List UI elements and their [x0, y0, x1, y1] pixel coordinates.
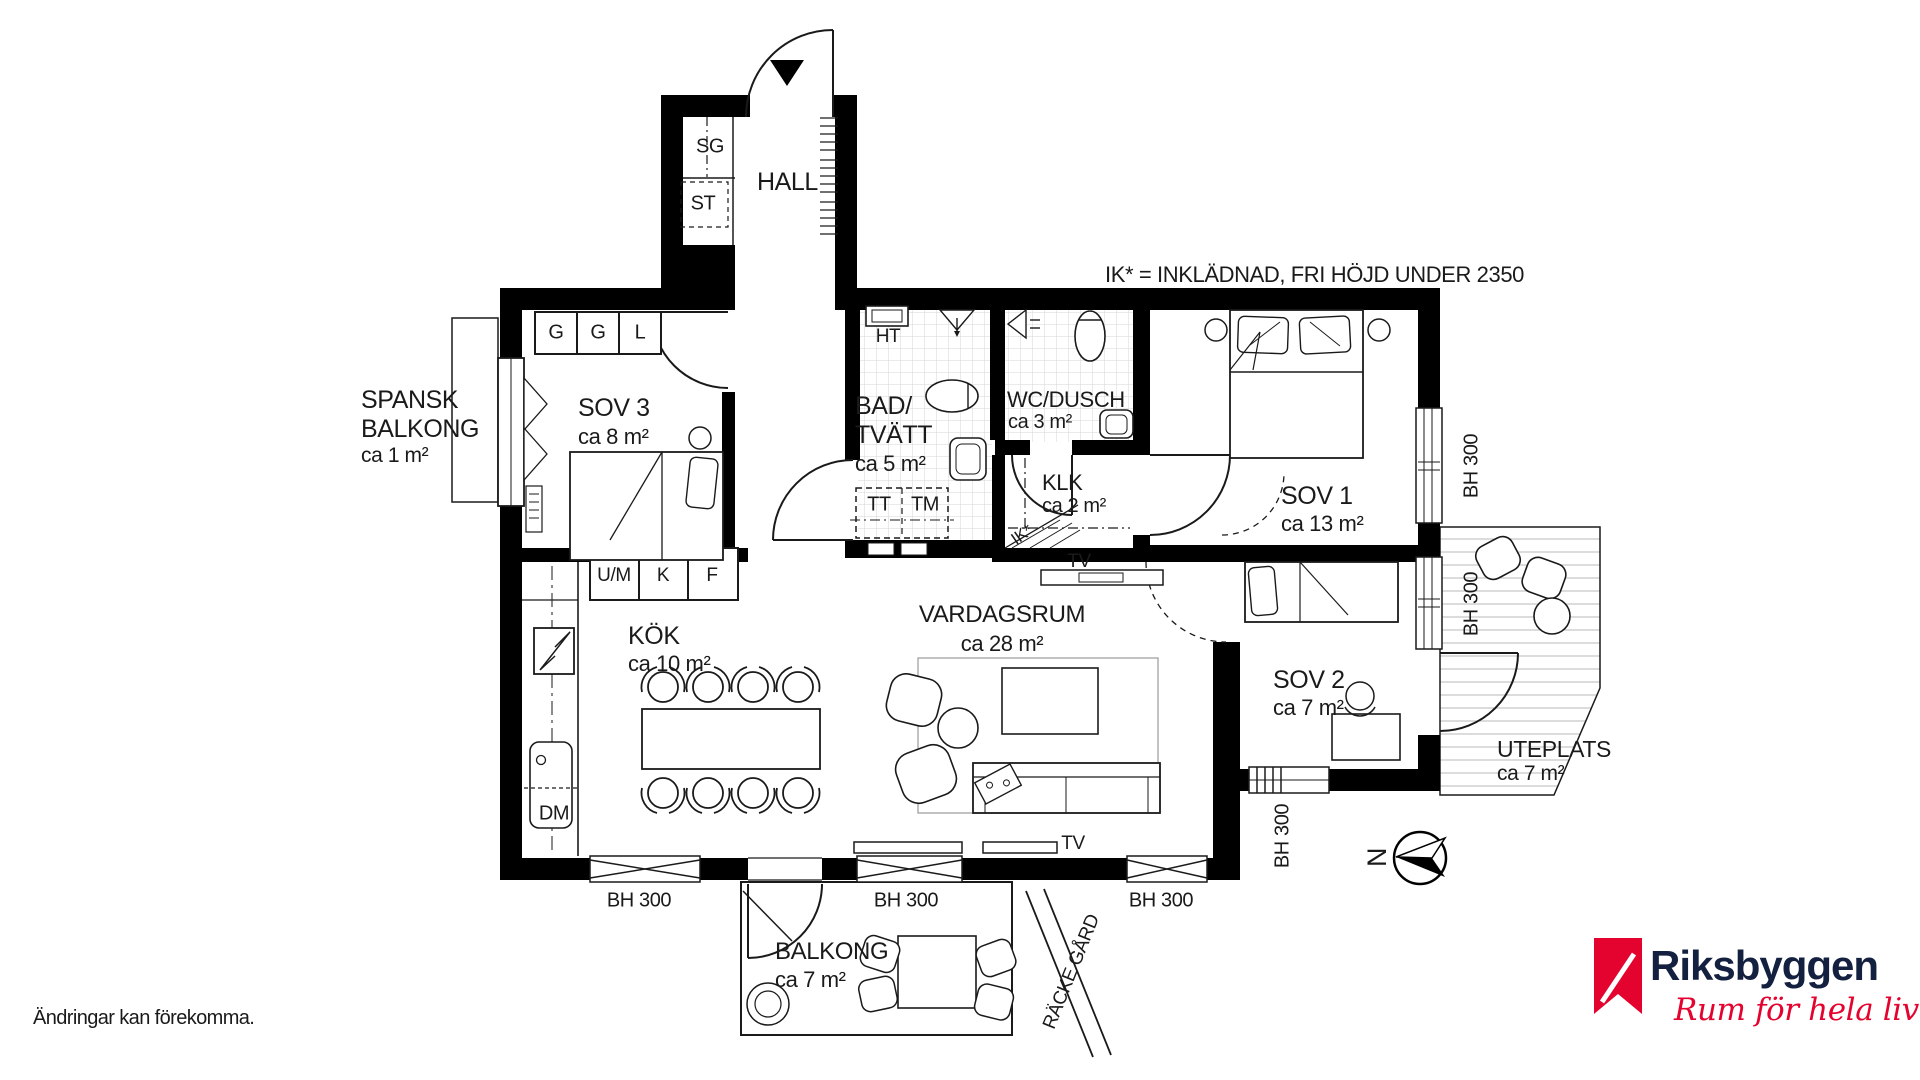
room-label-klk: KLK	[1042, 470, 1082, 496]
bedside-table	[1368, 319, 1390, 341]
bh300-label-bottom-3: BH 300	[1129, 890, 1193, 913]
armchair	[891, 740, 961, 808]
closet-label-st: ST	[691, 193, 716, 216]
sideboard	[854, 842, 962, 853]
balcony-chair	[857, 975, 899, 1014]
room-label-sov1: SOV 1	[1281, 482, 1353, 511]
room-label-bad-line2: TVÄTT	[855, 421, 932, 450]
fixture-label-tt: TT	[867, 494, 891, 517]
toilet	[1075, 311, 1105, 361]
balcony-chair	[973, 982, 1016, 1022]
wardrobe-label-l: L	[635, 322, 646, 345]
room-area-kok: ca 10 m²	[628, 651, 710, 677]
room-area-bad: ca 5 m²	[855, 451, 926, 477]
sov3-door	[652, 312, 728, 388]
livingroom-window-right	[1127, 856, 1207, 882]
room-area-balkong: ca 7 m²	[775, 967, 846, 993]
livingroom-window-left	[857, 856, 962, 882]
room-area-sov3: ca 8 m²	[578, 424, 649, 450]
sov1-east-window	[1416, 408, 1442, 523]
room-area-uteplats: ca 7 m²	[1497, 762, 1564, 786]
tv-label-lower: TV	[1061, 833, 1084, 855]
spanish-balcony-door	[498, 358, 547, 506]
bh300-label-sov2-south: BH 300	[1272, 804, 1295, 868]
brand-tagline: Rum för hela livet	[1674, 992, 1920, 1028]
room-area-wc: ca 3 m²	[1008, 411, 1072, 434]
room-label-sov3: SOV 3	[578, 394, 650, 423]
bh300-label-bottom-1: BH 300	[607, 890, 671, 913]
sov1-door	[1150, 455, 1284, 535]
room-label-spansk-balkong: SPANSK BALKONG ca 1 m²	[361, 386, 479, 468]
appliance-label-k: K	[657, 565, 669, 587]
room-area-sov1: ca 13 m²	[1281, 511, 1363, 537]
north-compass-icon	[1394, 832, 1446, 884]
room-label-kok: KÖK	[628, 622, 680, 651]
ik-note: IK* = INKLÄDNAD, FRI HÖJD UNDER 2350	[1105, 262, 1524, 288]
room-label-hall: HALL	[757, 168, 818, 197]
dining-table	[642, 709, 820, 769]
floorplan-page: SG ST HALL IK* = INKLÄDNAD, FRI HÖJD UND…	[0, 0, 1920, 1080]
bh300-label-bottom-2: BH 300	[874, 890, 938, 913]
floorplan-drawing	[0, 0, 1920, 1080]
room-area-vardagsrum: ca 28 m²	[961, 631, 1043, 657]
outdoor-table	[1534, 598, 1570, 634]
side-table	[938, 708, 978, 748]
pillow	[685, 457, 718, 510]
bad-door	[773, 460, 853, 540]
stool	[689, 427, 711, 449]
room-label-uteplats: UTEPLATS	[1497, 736, 1611, 763]
coffee-table	[1002, 668, 1098, 734]
bh300-label-sov2-east: BH 300	[1461, 572, 1484, 636]
radiator	[526, 486, 542, 532]
fixture-label-tm: TM	[911, 494, 939, 517]
bh300-label-sov1: BH 300	[1461, 434, 1484, 498]
disclaimer-text: Ändringar kan förekomma.	[33, 1007, 254, 1030]
appliance-label-um: U/M	[597, 565, 631, 587]
bedside-table	[1205, 319, 1227, 341]
toilet	[926, 380, 978, 412]
desk-chair	[1346, 682, 1374, 710]
riksbyggen-logo-mark	[1594, 938, 1642, 1014]
room-area-klk: ca 2 m²	[1042, 495, 1106, 518]
sov1-furniture	[1205, 310, 1390, 458]
wardrobe-label-g2: G	[590, 322, 605, 345]
north-label: N	[1361, 847, 1392, 866]
brand-name: Riksbyggen	[1650, 942, 1878, 990]
sov2-south-window	[1249, 767, 1329, 793]
fixture-label-dm: DM	[539, 803, 569, 826]
balcony-door-threshold	[748, 858, 822, 880]
balcony-table	[898, 936, 976, 1008]
wardrobe-label-g1: G	[548, 322, 563, 345]
entry-arrow-icon	[770, 60, 804, 86]
room-label-balkong: BALKONG	[775, 938, 888, 966]
armchair	[883, 670, 945, 729]
pillow	[1299, 316, 1351, 355]
pillow	[1248, 566, 1278, 616]
room-label-bad-line1: BAD/	[855, 392, 912, 421]
room-label-sov2: SOV 2	[1273, 666, 1345, 695]
tv-label-upper: TV	[1067, 551, 1090, 573]
fixture-label-ht: HT	[876, 326, 901, 348]
room-area-sov2: ca 7 m²	[1273, 695, 1344, 721]
appliance-label-f: F	[706, 565, 717, 587]
tv-set	[1079, 573, 1123, 582]
room-label-vardagsrum: VARDAGSRUM	[919, 601, 1085, 629]
kitchen-window	[590, 856, 700, 882]
room-label-wc: WC/DUSCH	[1007, 387, 1125, 413]
sov2-east-window	[1416, 557, 1442, 649]
closet-label-sg: SG	[696, 136, 724, 159]
tv-bench-lower	[983, 842, 1057, 853]
sov2-furniture	[1245, 562, 1400, 760]
